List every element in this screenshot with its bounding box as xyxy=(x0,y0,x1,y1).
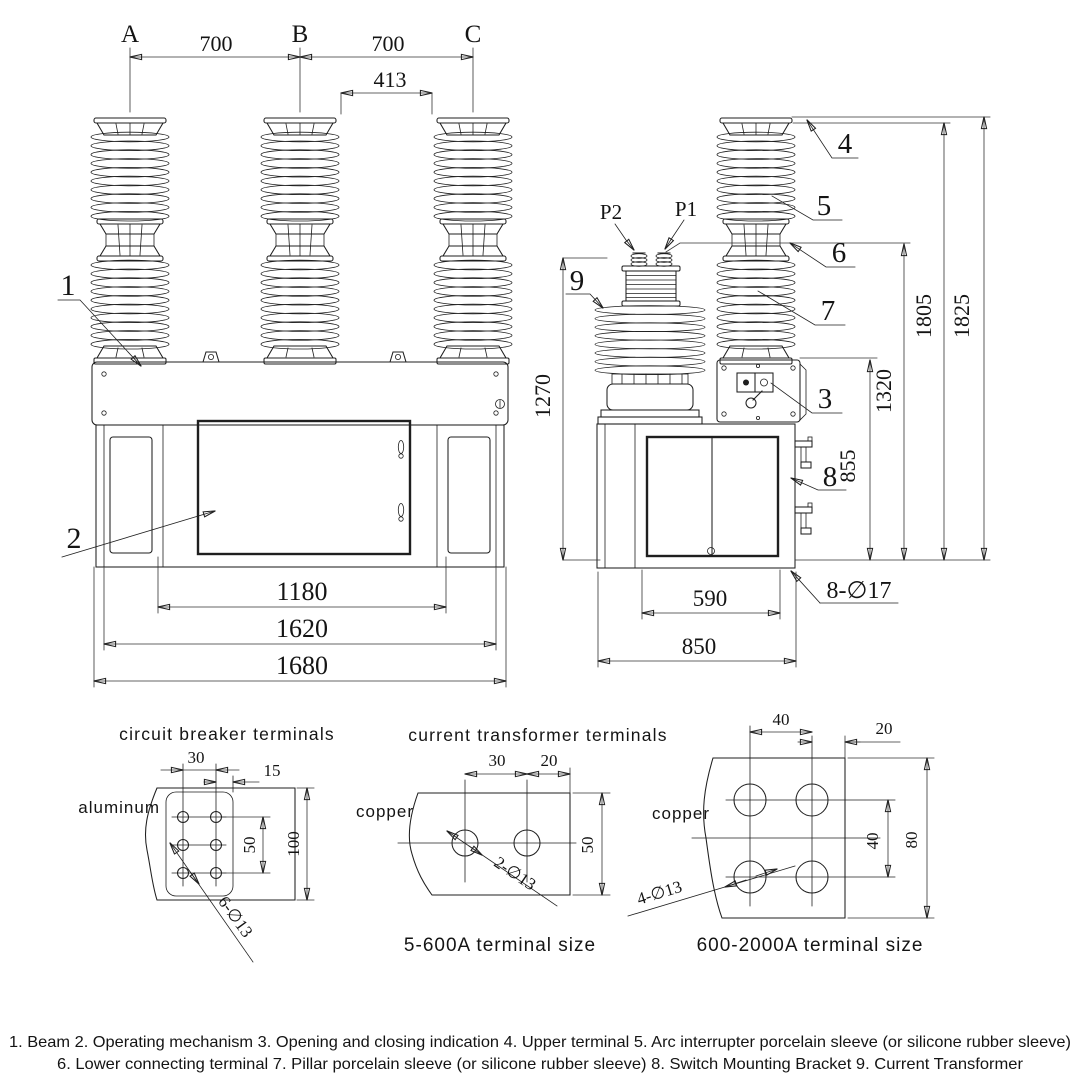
current-transformer xyxy=(595,253,705,424)
indication-box xyxy=(717,360,806,422)
dim-height-2: 1825 xyxy=(949,294,974,338)
part-label-beam: 1 xyxy=(61,269,76,302)
dim-big-w1: 40 xyxy=(773,710,790,729)
side-dimensions-bottom: 590 850 8-∅17 xyxy=(598,570,898,667)
circuit-breaker-drawing: A B C 700 700 413 1180 1620 1680 1 xyxy=(0,0,1080,1080)
dim-big-w2: 20 xyxy=(876,719,893,738)
dim-ct-holes: 2-∅13 xyxy=(491,853,540,894)
part-label-upper-terminal: 4 xyxy=(838,128,853,160)
phase-label-a: A xyxy=(121,21,139,48)
part-label-ct: 9 xyxy=(570,265,585,297)
dim-ct-height: 1270 xyxy=(530,374,555,418)
dim-ab: 700 xyxy=(200,31,233,56)
legend-line-2: 6. Lower connecting terminal 7. Pillar p… xyxy=(57,1056,1024,1073)
front-frame xyxy=(96,421,504,567)
ct-terminal-plate xyxy=(409,793,570,895)
insulator-column-c xyxy=(434,118,512,364)
detail-ct-material: copper xyxy=(356,802,414,821)
detail-circuit-breaker-terminals: circuit breaker terminals aluminum 30 15… xyxy=(78,724,335,962)
cb-terminal-plate xyxy=(145,788,295,900)
detail-ct-dimensions: 30 20 50 2-∅13 xyxy=(447,751,610,906)
front-view: A B C 700 700 413 1180 1620 1680 1 xyxy=(58,21,512,687)
detail-ct-terminals: current transformer terminals copper 30 … xyxy=(356,725,668,956)
detail-big-material: copper xyxy=(652,804,710,823)
front-part-labels: 1 2 xyxy=(58,269,215,557)
legend-line-1: 1. Beam 2. Operating mechanism 3. Openin… xyxy=(9,1034,1071,1051)
ground-badge xyxy=(496,400,505,409)
beam xyxy=(92,352,508,425)
dim-cb-h1: 50 xyxy=(240,837,259,854)
dim-big-h1: 40 xyxy=(863,833,882,850)
front-dimensions-bottom: 1180 1620 1680 xyxy=(94,557,506,687)
dim-ct-w1: 30 xyxy=(489,751,506,770)
dim-overall: 1680 xyxy=(276,651,328,680)
dim-cb-w2: 15 xyxy=(264,761,281,780)
dim-cb-h2: 100 xyxy=(284,831,303,857)
detail-cb-title: circuit breaker terminals xyxy=(119,724,335,744)
dim-base: 850 xyxy=(682,634,717,659)
pillar-column xyxy=(717,118,795,364)
label-p1: P1 xyxy=(675,197,697,221)
ct-terminal-p1 xyxy=(656,253,672,266)
side-frame xyxy=(597,424,812,568)
dim-gap: 413 xyxy=(374,67,407,92)
dim-bc: 700 xyxy=(372,31,405,56)
detail-cb-dimensions: 30 15 50 100 6-∅13 xyxy=(161,748,314,962)
detail-ct-title: current transformer terminals xyxy=(408,725,667,745)
close-indicator-icon xyxy=(743,380,749,386)
side-view: 1270 855 1320 1805 1825 590 850 8-∅17 xyxy=(530,117,990,667)
ct-sheds xyxy=(595,306,705,375)
dim-big-holes: 4-∅13 xyxy=(635,877,685,909)
phase-label-b: B xyxy=(292,21,309,48)
side-dimensions-vertical: 1270 855 1320 1805 1825 xyxy=(530,117,984,560)
ct-terminal-p2 xyxy=(631,253,647,266)
front-insulator-columns xyxy=(91,118,512,364)
front-dimensions-top: A B C 700 700 413 xyxy=(121,21,481,114)
dim-inner: 1180 xyxy=(276,577,327,606)
dim-door: 590 xyxy=(693,586,728,611)
detail-ct-caption: 5-600A terminal size xyxy=(404,935,596,956)
dim-bracket: 855 xyxy=(835,450,860,483)
part-label-lower-terminal: 6 xyxy=(832,237,847,269)
phase-label-c: C xyxy=(465,21,482,48)
dim-big-h2: 80 xyxy=(902,832,921,849)
dim-ct-h1: 50 xyxy=(578,837,597,854)
dim-mounting-holes: 8-∅17 xyxy=(827,578,892,604)
mechanism-door xyxy=(198,421,410,554)
insulator-column-a xyxy=(91,118,169,364)
part-label-bracket: 8 xyxy=(823,461,838,493)
dim-terminal: 1320 xyxy=(871,369,896,413)
part-label-arc-sleeve: 5 xyxy=(817,190,832,222)
part-label-pillar-sleeve: 7 xyxy=(821,295,836,327)
dim-cb-w1: 30 xyxy=(188,748,205,767)
dim-ct-w2: 20 xyxy=(541,751,558,770)
open-indicator-icon xyxy=(761,379,768,386)
legend: 1. Beam 2. Operating mechanism 3. Openin… xyxy=(9,1034,1071,1073)
detail-big-caption: 600-2000A terminal size xyxy=(697,935,924,956)
detail-big-terminals: copper 40 20 40 80 4-∅13 xyxy=(628,710,934,956)
insulator-column-b xyxy=(261,118,339,364)
dim-frame: 1620 xyxy=(276,614,328,643)
part-label-indication: 3 xyxy=(818,383,833,415)
label-p2: P2 xyxy=(600,200,622,224)
dim-height-1: 1805 xyxy=(911,294,936,338)
part-label-mechanism: 2 xyxy=(67,522,82,555)
